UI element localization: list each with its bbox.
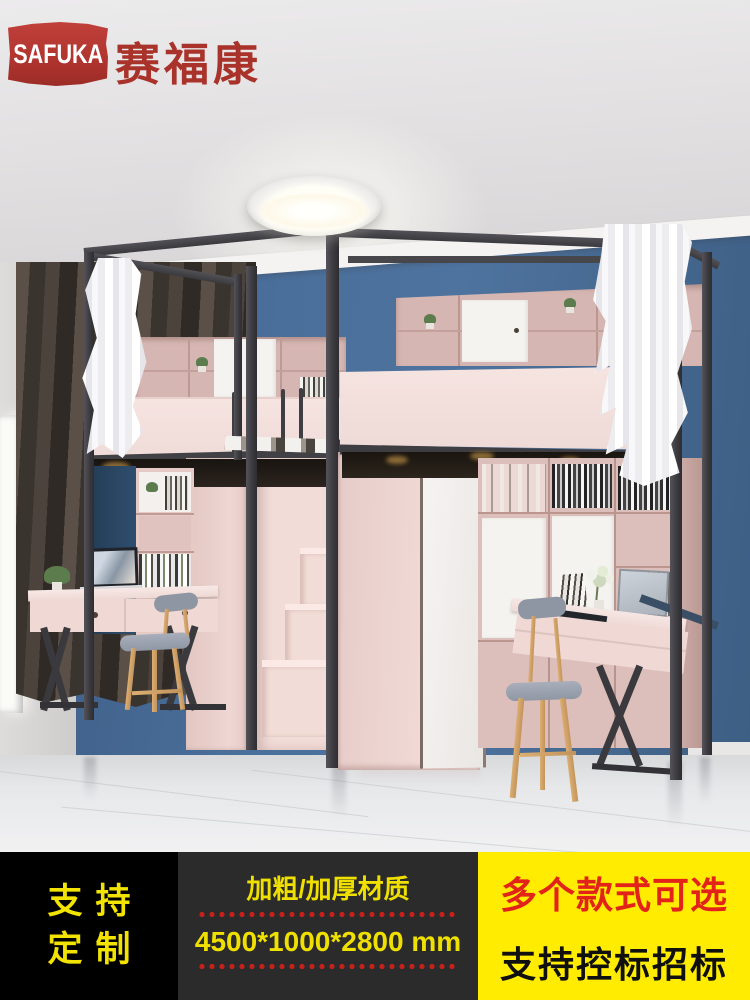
cabinet-divider [188, 337, 190, 399]
ceiling-lamp-glow [259, 193, 369, 229]
product-image: SAFUKA 赛福康 支持 定制 加粗/加厚材质 4500*1000*2800 … [0, 0, 750, 1000]
desk-foot [160, 704, 226, 710]
banner-styles-line1: 多个款式可选 [478, 865, 750, 919]
banner-styles-line2: 支持控标招标 [478, 936, 750, 988]
plant-pot [198, 366, 206, 372]
banner-styles-box: 多个款式可选 支持控标招标 [478, 852, 750, 1000]
shelf-line [478, 512, 678, 514]
drawer-divider [515, 629, 686, 652]
shelf-books [162, 476, 188, 510]
stair-step [300, 554, 327, 606]
shelf-line [136, 551, 194, 553]
stair-step [262, 667, 327, 737]
chair-seat [506, 681, 583, 702]
drawer-divider [124, 599, 126, 632]
banner-material-line1: 加粗/加厚材质 [178, 869, 478, 906]
bed-frame-post [84, 252, 94, 720]
chair-leg [152, 650, 157, 712]
plant-pot [426, 323, 434, 329]
brand-logo-flag: SAFUKA [8, 22, 108, 86]
flowers [582, 564, 614, 588]
room-photo: SAFUKA 赛福康 [0, 0, 750, 852]
laptop-screen [88, 550, 135, 585]
cabinet-divider [458, 284, 460, 366]
wardrobe-door [420, 455, 486, 768]
under-bed-light [386, 456, 408, 464]
plant-pot [566, 307, 574, 313]
floor-reflection [84, 757, 96, 799]
shelf-magazines [552, 464, 612, 508]
floor-reflection [700, 757, 710, 803]
red-dotted-divider [198, 963, 458, 970]
banner-size-text: 4500*1000*2800 mm [178, 926, 478, 958]
shelf-compartment [139, 516, 191, 550]
bed-frame-post [246, 266, 257, 750]
brand-name-cn: 赛福康 [115, 28, 262, 93]
bed-frame-post [702, 252, 712, 755]
banner-material-box: 加粗/加厚材质 4500*1000*2800 mm [178, 852, 478, 1000]
shelf-line [136, 513, 194, 515]
door-handle [514, 328, 519, 333]
banner-custom-box: 支持 定制 [0, 852, 178, 1000]
red-dotted-divider [198, 911, 458, 918]
bed-frame-post [234, 274, 242, 460]
chair-leg [540, 700, 545, 790]
banner-custom-line1: 支持 [47, 878, 143, 926]
cabinet-door [214, 339, 276, 397]
banner-custom-line2: 定制 [47, 926, 143, 974]
promo-banner: 支持 定制 加粗/加厚材质 4500*1000*2800 mm 多个款式可选 支… [0, 852, 750, 1000]
shelf-decor [482, 464, 546, 514]
stair-step [285, 610, 327, 666]
shelf-plant [146, 482, 158, 492]
brand-name-en: SAFUKA [13, 39, 103, 70]
